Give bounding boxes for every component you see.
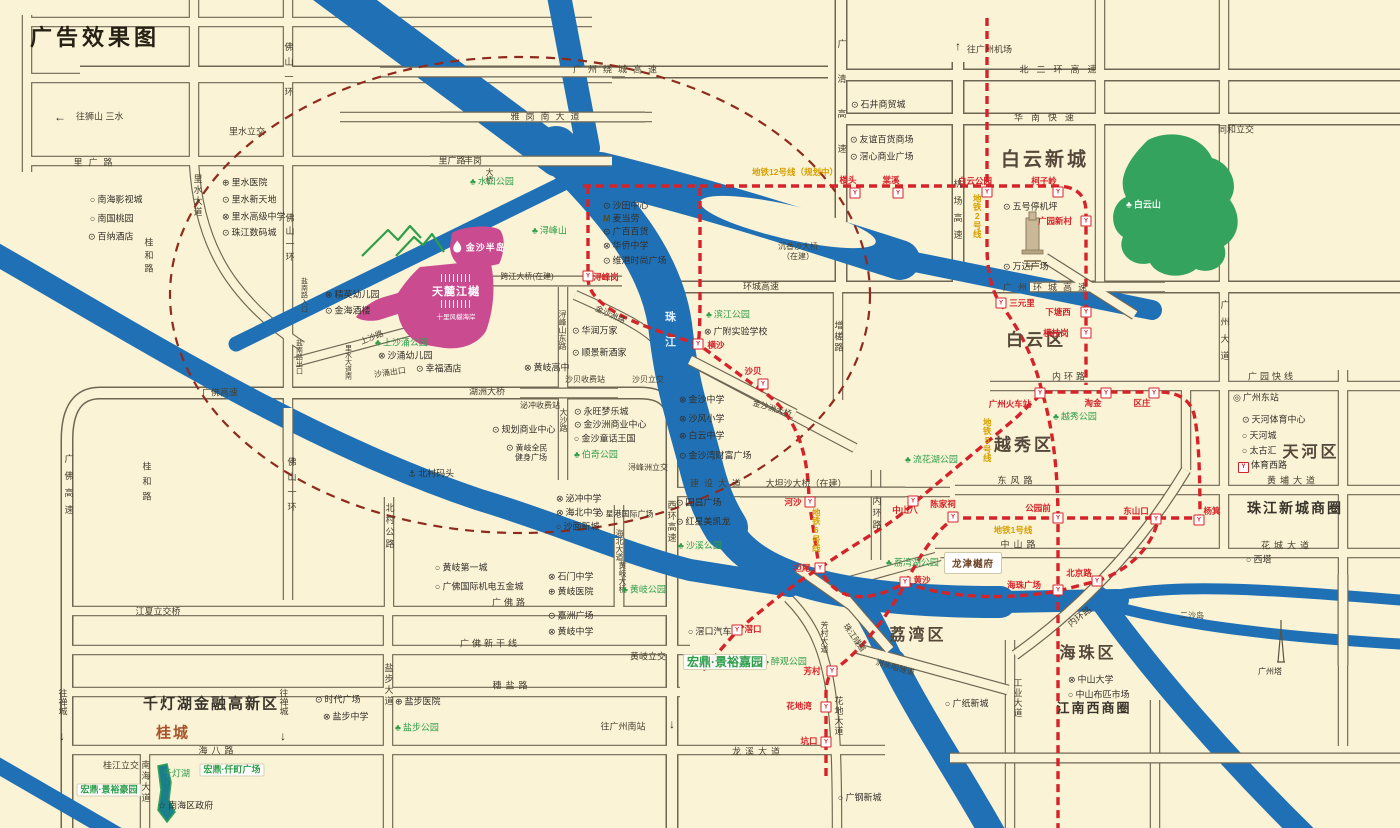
label-text: 浔峰洲立交 <box>628 463 668 472</box>
label-text: 幸福酒店 <box>426 364 462 374</box>
building-icon: ⊙ <box>572 348 580 358</box>
road-label: 工业大道 <box>1013 678 1022 718</box>
flame-icon <box>452 241 462 253</box>
label-text: 里水大道南 <box>345 345 352 380</box>
label-text: 江夏立交桥 <box>135 607 180 617</box>
label-text: 沙贝收费站 <box>565 375 605 384</box>
label-text: 广州塔 <box>1258 667 1282 676</box>
road-label: 二沙岛 <box>1180 612 1204 620</box>
tree-icon: ♣ <box>574 450 580 460</box>
building-icon: ⊙ <box>222 195 230 205</box>
label-text: 麦当劳 <box>613 214 640 224</box>
label-text: 桂和路 <box>142 462 152 507</box>
label-text: 下塘西 <box>1045 307 1071 317</box>
metro-station-label: 北京路 <box>1066 569 1092 578</box>
road-label: 广州环城高速 <box>1003 284 1093 293</box>
road-label: 里广路 <box>438 157 465 166</box>
label-text: （在建） <box>782 252 814 261</box>
project-label: 宏鼎·景裕豪园 <box>77 784 142 797</box>
district-label: 海珠区 <box>1059 646 1116 662</box>
road-label: 里水大道 <box>193 174 202 218</box>
building-icon: ⊙ <box>679 451 687 461</box>
label-text: 水口公园 <box>478 177 514 187</box>
road-label: 泌冲收费站 <box>520 402 560 410</box>
park-label: ♣盐步公园 <box>395 724 439 733</box>
label-text: 淘金 <box>1084 398 1101 408</box>
road-label: 广佛新干线 <box>460 640 520 649</box>
poi-label: 广州塔 <box>1258 668 1282 676</box>
label-text: 横枝岗 <box>1043 328 1069 338</box>
label-text: 体育西路 <box>1251 460 1287 470</box>
road-label: 往广州机场 <box>967 46 1012 55</box>
label-text: 内环路 <box>1066 604 1093 629</box>
road-label: 黄埔大道 <box>1267 477 1319 486</box>
road-label: 江夏立交桥 <box>135 608 180 617</box>
label-text: 石门中学 <box>558 572 594 582</box>
label-text: 花城大道 <box>1261 541 1313 551</box>
poi-label: ⊙天河体育中心 <box>1242 416 1306 425</box>
poi-label: ⊗中山大学 <box>1068 676 1114 685</box>
metro-station-icon: Y <box>827 666 838 677</box>
arrow-down-icon: ↓ <box>59 730 65 742</box>
label-text: 往广州机场 <box>967 45 1012 55</box>
label-text: 金海酒楼 <box>335 306 371 316</box>
label-text: 往禅城 <box>58 689 68 716</box>
label-text: 顺景新酒家 <box>582 348 627 358</box>
metro-station-label: 柯子岭 <box>1031 177 1057 186</box>
poi-label: ⊙星港国际广场 <box>596 510 654 519</box>
label-text: 黄沙 <box>913 575 930 585</box>
label-text: 海珠区 <box>1059 645 1116 662</box>
road-label: 丰岗 <box>464 157 482 166</box>
road-label: 海八路 <box>198 747 237 756</box>
poi-label: ⊙永旺梦乐城 <box>574 408 629 417</box>
poi-label: ⊕盐步医院 <box>395 698 441 707</box>
metro-station-label: 广州火车站 <box>989 400 1032 409</box>
label-text: 浔峰山 <box>540 226 567 236</box>
poi-label: ⊙里水新天地 <box>222 196 277 205</box>
label-text: 规划商业中心 <box>502 425 556 435</box>
label-text: 北村码头 <box>418 469 454 479</box>
label-text: 坑口 <box>800 736 817 746</box>
label-text: 东山口 <box>1123 506 1149 516</box>
label-text: 滘心商业广场 <box>860 152 914 162</box>
label-text: 千灯湖 <box>163 769 190 779</box>
metro-station-label: 海珠广场 <box>1007 581 1041 590</box>
poi-label: ⊙金沙湾财富广场 <box>679 452 752 461</box>
label-text: 往广州南站 <box>600 722 645 732</box>
poi-label: ⊙时代广场 <box>315 696 361 705</box>
arrow-left-icon: ← <box>54 111 66 123</box>
label-text: 西环高速 <box>667 500 677 544</box>
metro-station-label: 楼头 <box>839 176 856 185</box>
label-text: 沙田中心 <box>613 201 649 211</box>
river-label: 珠江 <box>664 311 675 361</box>
tree-icon: ♣ <box>395 723 401 733</box>
metro-station-label: 淘金 <box>1084 399 1101 408</box>
road-label: 环城高速 <box>743 283 779 292</box>
metro-station-label: 陈家祠 <box>930 500 956 509</box>
building-icon: ⊙ <box>603 227 611 237</box>
label-text: 金沙洲路 <box>594 304 627 325</box>
label-text: 河沙 <box>784 497 801 507</box>
label-text: 里水立交 <box>229 127 265 137</box>
metro-station-icon: Y <box>1035 388 1046 399</box>
anchor-icon: ⚓ <box>408 469 416 479</box>
label-text: 华侨中学 <box>613 241 649 251</box>
school-icon: ⊗ <box>556 494 564 504</box>
circle-icon: ○ <box>1068 690 1073 700</box>
label-text: 广佛高速 <box>202 388 238 398</box>
label-text: 广佛路 <box>492 598 528 608</box>
label-text: 黄岐高中 <box>534 363 570 373</box>
building-icon: ⊙ <box>574 420 582 430</box>
road-label: 黄岐立交 <box>630 653 666 662</box>
school-icon: ⊗ <box>323 712 331 722</box>
poi-label: ◎广州东站 <box>1233 394 1279 403</box>
metro-station-icon: Y <box>893 188 904 199</box>
road-label: 建设大道 <box>690 480 746 489</box>
label-text: 黄岐公园 <box>630 585 666 595</box>
label-text: 华南快速 <box>1014 113 1082 123</box>
building-icon: ⊙ <box>603 256 611 266</box>
road-label: 桂和路 <box>142 462 151 507</box>
label-text: 万达广场 <box>1013 262 1049 272</box>
label-text: 盐步公园 <box>403 723 439 733</box>
label-text: 江南西商圈 <box>1056 701 1131 716</box>
road-label: 盐南路出口 <box>296 340 303 375</box>
road-label: 内环路 <box>872 496 881 532</box>
label-text: 里水大道 <box>193 174 203 218</box>
business-circle-label: 江南西商圈 <box>1056 702 1131 715</box>
label-text: 湖洲大桥 <box>469 387 505 397</box>
metro-station-icon: Y <box>1081 328 1092 339</box>
road-label: 芳村大道 <box>820 621 828 653</box>
label-text: 沙面新城 <box>563 522 599 532</box>
building-icon: ⊙ <box>851 100 859 110</box>
label-text: 盐步中学 <box>333 712 369 722</box>
poi-label: ⊙华润万家 <box>572 327 618 336</box>
road-label: 佛山一环 <box>287 457 296 517</box>
district-label: 天河区 <box>1282 445 1339 461</box>
label-text: 天河体育中心 <box>1252 415 1306 425</box>
road-label: 里广路 <box>73 159 118 168</box>
poi-label: ⊙广百百货 <box>603 228 649 237</box>
label-text: 海北大道 <box>615 529 624 561</box>
circle-icon: ○ <box>435 582 440 592</box>
label-text: 内环路 <box>872 496 882 532</box>
poi-label: ○金沙童话王国 <box>574 435 635 444</box>
poi-label: ⊙幸福酒店 <box>416 365 462 374</box>
school-icon: ⊗ <box>556 508 564 518</box>
metro-station-label: 公园前 <box>1025 504 1051 513</box>
metro-station-label: 花地湾 <box>786 702 812 711</box>
tree-icon: ♣ <box>706 310 712 320</box>
poi-label: ⊙红星美凯龙 <box>676 518 731 527</box>
logo-ornament <box>441 300 471 308</box>
metro-station-icon: Y <box>693 339 704 350</box>
road-label: 珠江隧道 <box>842 623 867 654</box>
label-text: 千灯湖金融高新区 <box>143 696 279 713</box>
circle-icon: ○ <box>574 434 579 444</box>
metro-station-icon: Y <box>1101 388 1112 399</box>
label-text: 广佛国际机电五金城 <box>442 582 523 592</box>
park-label: ♣上沙涌公园 <box>375 339 428 348</box>
label-text: 太古汇 <box>1249 446 1276 456</box>
road-label: 内环路 <box>1067 605 1094 629</box>
label-text: 里水新天地 <box>232 195 277 205</box>
longjin-mansion-logo: 龙津樾府 <box>944 552 1002 574</box>
district-label: 越秀区 <box>994 437 1054 454</box>
road-label: 沙贝收费站 <box>565 376 605 384</box>
label-text: 浔峰山东路 <box>558 310 567 350</box>
label-text: 陈家祠 <box>930 499 956 509</box>
poi-label: ⊗黄岐高中 <box>524 364 570 373</box>
road-label: 桂和路 <box>144 238 153 277</box>
metro-station-label: 滘口 <box>744 625 761 634</box>
metro-station-icon: Y <box>996 298 1007 309</box>
metro-station-icon: Y <box>1194 515 1205 526</box>
poi-label: ⊗黄岐中学 <box>548 628 594 637</box>
label-text: 地铁12号线（规划中） <box>752 167 838 177</box>
label-text: 红星美凯龙 <box>686 517 731 527</box>
road-label: 往广州南站 <box>600 723 645 732</box>
circle-icon: ○ <box>435 563 440 573</box>
poi-label: ⊙五号停机坪 <box>1003 203 1058 212</box>
label-text: 南海影视城 <box>97 195 142 205</box>
school-icon: ⊗ <box>548 572 556 582</box>
label-text: 白云中学 <box>689 431 725 441</box>
label-text: 泌冲收费站 <box>520 401 560 410</box>
building-icon: ⊙ <box>548 611 556 621</box>
label-text: 盐南路出口 <box>296 340 303 375</box>
poi-label: ⊙金海酒楼 <box>325 307 371 316</box>
label-text: 增槎路 <box>834 321 844 354</box>
poi-label: ☆南海区政府 <box>158 802 213 811</box>
road-label: 东风路 <box>997 477 1036 486</box>
building-icon: ⊙ <box>492 425 500 435</box>
road-label: 西环高速 <box>667 500 676 544</box>
poi-label: ⊙友谊百货商场 <box>850 136 914 145</box>
building-icon: ⊙ <box>850 152 858 162</box>
arrow-down-icon: ↓ <box>280 730 286 742</box>
circle-icon: ○ <box>556 522 561 532</box>
road-label: 浔峰山东路 <box>558 310 566 350</box>
poi-label: 健身广场 <box>515 454 547 462</box>
label-text: 花地大道 <box>834 696 844 736</box>
poi-label: ⊗石门中学 <box>548 573 594 582</box>
road-label: 中山路 <box>1000 541 1039 550</box>
label-text: 国昌广场 <box>686 498 722 508</box>
label-text: 北二环高速 <box>1019 65 1104 75</box>
road-label: 佛山一环 <box>284 42 293 102</box>
poi-label: ⊗华侨中学 <box>603 242 649 251</box>
metro-station-icon: Y <box>1081 307 1092 318</box>
district-label: 桂城 <box>156 726 190 741</box>
label-text: 石井商贸城 <box>861 100 906 110</box>
label-text: 里广路 <box>438 156 465 166</box>
metro-station-icon: Y <box>1151 514 1162 525</box>
project-label: 宏鼎·仟町广场 <box>200 764 265 777</box>
label-text: 醉观公园 <box>771 657 807 667</box>
road-label: 穗盐路 <box>492 682 531 691</box>
label-text: 广钢新城 <box>845 793 881 803</box>
label-text: 环城高速 <box>743 282 779 292</box>
road-label: 北村公路 <box>385 503 394 551</box>
label-text: 星港国际广场 <box>606 510 654 519</box>
road-label: 往禅城 <box>279 689 288 716</box>
tree-icon: ♣ <box>1126 200 1132 210</box>
hospital-icon: ⊕ <box>222 178 230 188</box>
road-label: 金沙洲路 <box>594 305 626 325</box>
page-title: 广告效果图 <box>30 20 160 52</box>
jinsha-peninsula-logo: 金沙半岛 <box>452 241 506 254</box>
poi-label: ○黄岐第一城 <box>435 564 487 573</box>
metro-station-label: 坑口 <box>800 737 817 746</box>
mcdonalds-icon: M <box>603 214 611 224</box>
circle-icon: ○ <box>1242 446 1247 456</box>
label-text: 金沙湾财富广场 <box>689 451 752 461</box>
label-text: 白云公园 <box>958 176 992 186</box>
circle-icon: ○ <box>945 699 950 709</box>
road-label: 浔峰洲立交 <box>628 464 668 472</box>
label-text: 健身广场 <box>515 453 547 462</box>
tree-icon: ♣ <box>1053 412 1059 422</box>
building-icon: ⊙ <box>222 228 230 238</box>
metro-station-icon: Y <box>821 737 832 748</box>
label-text: 百纳酒店 <box>98 232 134 242</box>
label-text: 黄埔大道 <box>1267 476 1319 486</box>
label-text: 金沙洲商业中心 <box>584 420 647 430</box>
building-icon: ⊙ <box>676 498 684 508</box>
metro-station-icon: Y <box>758 379 769 390</box>
label-text: 里广路 <box>73 158 118 168</box>
school-icon: ⊗ <box>548 627 556 637</box>
road-label: 同和立交 <box>1218 126 1254 135</box>
label-text: 友谊百货商场 <box>860 135 914 145</box>
poi-label: Y体育西路 <box>1238 461 1287 473</box>
label-text: 里水高级中学 <box>232 212 286 222</box>
tianlu-subtitle: 十里风樾海岸 <box>432 311 480 321</box>
label-text: 广州绕城高速 <box>573 65 663 75</box>
label-text: 公园前 <box>1025 503 1051 513</box>
label-text: 广州环城高速 <box>1003 283 1093 293</box>
tree-icon: ♣ <box>886 558 892 568</box>
park-label: 千灯湖 <box>163 770 190 779</box>
label-text: 滘口 <box>744 624 761 634</box>
metro-station-label: 横沙 <box>707 341 724 350</box>
label-text: 五号停机坪 <box>1013 202 1058 212</box>
road-label: 大坦沙大桥（在建） <box>765 480 846 489</box>
road-label: （在建） <box>782 253 814 261</box>
poi-label: ⊗海北中学 <box>556 509 602 518</box>
label-text: 荔湾区 <box>889 627 946 644</box>
metro-station-icon: Y <box>850 188 861 199</box>
label-text: 穗盐路 <box>492 681 531 691</box>
label-text: 北京路 <box>1066 568 1092 578</box>
label-text: 楼头 <box>839 175 856 185</box>
metro-station-label: 区庄 <box>1133 399 1150 408</box>
building-icon: ⊙ <box>850 135 858 145</box>
metro-station-label: 中山八 <box>892 506 918 515</box>
metro-station-label: 沙贝 <box>744 367 761 376</box>
park-label: ♣白云山 <box>1126 201 1161 210</box>
road-label: 盐南路入口 <box>301 278 308 313</box>
park-label: ♣伯奇公园 <box>574 451 618 460</box>
road-label: 跨江大桥(在建) <box>500 273 553 281</box>
circle-icon: ○ <box>688 627 693 637</box>
label-text: 广州火车站 <box>989 399 1032 409</box>
road-label: 北二环高速 <box>1019 66 1104 75</box>
metro-station-label: 三元里 <box>1009 299 1035 308</box>
label-text: 中山大学 <box>1078 675 1114 685</box>
label-text: 龙溪大道 <box>732 747 784 757</box>
road-label: 海北大道 <box>615 529 623 561</box>
label-text: 棠溪 <box>882 175 899 185</box>
metro-station-label: 棠溪 <box>882 176 899 185</box>
logo-ornament <box>441 274 471 282</box>
label-text: 建设大道 <box>690 479 746 489</box>
road-label: 华南快速 <box>1014 114 1082 123</box>
tree-icon: ♣ <box>622 585 628 595</box>
tree-icon: ♣ <box>532 226 538 236</box>
star-icon: ☆ <box>158 801 166 811</box>
road-label: 沙贝立交 <box>632 376 664 384</box>
park-label: ♣滨江公园 <box>706 311 750 320</box>
label-text: 工业大道 <box>1013 678 1023 718</box>
road-label: 广清高速 <box>837 39 846 179</box>
label-text: 洲头咀隧道 <box>875 658 916 678</box>
school-icon: ⊗ <box>603 241 611 251</box>
poi-label: ○太古汇 <box>1242 447 1276 456</box>
school-icon: ⊗ <box>679 395 687 405</box>
circle-icon: ○ <box>90 195 95 205</box>
metro-station-icon: Y <box>900 577 911 588</box>
label-text: 地铁2号线 <box>972 194 982 238</box>
building-icon: ⊙ <box>315 695 323 705</box>
road-label: 桂江立交 <box>103 762 139 771</box>
school-icon: ⊗ <box>1068 675 1076 685</box>
arrow-up-icon: ↑ <box>955 40 961 52</box>
road-label: 往禅城 <box>58 689 67 716</box>
metro-line-label: 地铁12号线（规划中） <box>752 168 838 177</box>
poi-label: ⊙金沙洲商业中心 <box>574 421 647 430</box>
label-text: 黄岐第一城 <box>442 563 487 573</box>
tree-icon: ♣ <box>905 455 911 465</box>
park-label: ♣水口公园 <box>470 178 514 187</box>
project-label: 宏鼎·景裕嘉园 <box>683 654 767 670</box>
map-canvas: 广告效果图 广州绕城高速北二环高速华南快速雅岗南大道里广路里广路丰岗大桥环城高速… <box>0 0 1400 828</box>
label-text: 永旺梦乐城 <box>584 407 629 417</box>
label-text: 花地湾 <box>786 701 812 711</box>
road-label: 盐步大道 <box>384 663 393 707</box>
metro-station-icon: Y <box>982 187 993 198</box>
metro-station-icon: Y <box>1081 216 1092 227</box>
metro-line-label: 地铁5号线 <box>983 418 992 462</box>
label-text: 北村公路 <box>385 503 395 551</box>
tree-icon: ♣ <box>375 338 381 348</box>
label-text: 白云山 <box>1134 200 1161 210</box>
label-text: 宏鼎·仟町广场 <box>204 765 261 775</box>
label-text: 广佛高速 <box>64 454 74 522</box>
poi-label: ⊙国昌广场 <box>676 499 722 508</box>
label-text: 中山布匹市场 <box>1075 690 1129 700</box>
poi-label: ⊙规划商业中心 <box>492 426 556 435</box>
poi-label: ⊗白云中学 <box>679 432 725 441</box>
building-icon: ⊙ <box>574 407 582 417</box>
label-text: 海珠广场 <box>1007 580 1041 590</box>
label-text: 雅岗南大道 <box>510 112 585 122</box>
